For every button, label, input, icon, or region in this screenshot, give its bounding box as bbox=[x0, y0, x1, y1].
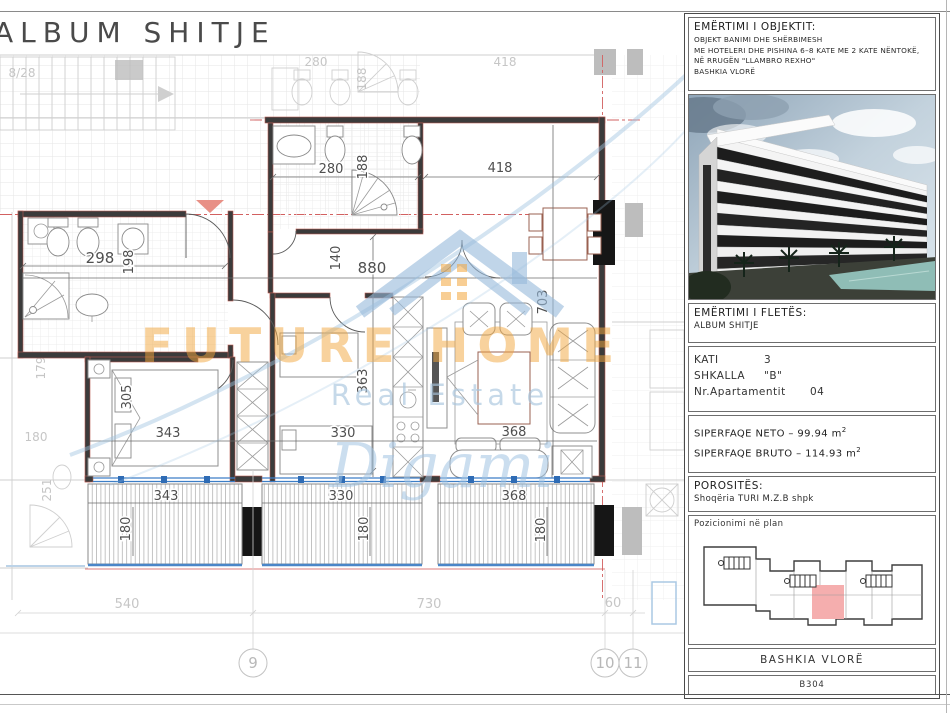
svg-text:280: 280 bbox=[319, 162, 344, 177]
faded-dim: 188 bbox=[355, 68, 369, 91]
faded-dim: 179 bbox=[34, 357, 48, 380]
svg-text:730: 730 bbox=[417, 597, 442, 612]
watermark-signature: Digami bbox=[329, 429, 555, 502]
sheet-bottom-rule bbox=[0, 694, 950, 695]
position-label: Pozicionimi në plan bbox=[694, 519, 930, 529]
svg-text:343: 343 bbox=[156, 426, 181, 441]
plan-title: ALBUM SHITJE bbox=[0, 16, 276, 49]
sheet-right-edge bbox=[946, 0, 947, 713]
sheet-value: ALBUM SHITJE bbox=[694, 321, 930, 331]
staircase-label: SHKALLA bbox=[694, 370, 750, 382]
building-render bbox=[689, 95, 936, 300]
object-label: EMËRTIMI I OBJEKTIT: bbox=[694, 21, 930, 33]
faded-dim: 280 bbox=[305, 55, 328, 69]
sheet-bottom-rule-2 bbox=[0, 704, 950, 705]
svg-text:188: 188 bbox=[356, 155, 371, 180]
bedroom1-furniture bbox=[88, 360, 218, 476]
object-line: ME HOTELERI DHE PISHINA 6–8 KATE ME 2 KA… bbox=[694, 46, 930, 57]
floor-plan-drawing: 8/28 280 188 418 179 180 251 bbox=[0, 0, 686, 713]
gross-area: SIPERFAQE BRUTO – 114.93 m2 bbox=[694, 446, 930, 459]
building-photo bbox=[688, 94, 936, 300]
areas-box: SIPERFAQE NETO – 99.94 m2 SIPERFAQE BRUT… bbox=[688, 415, 936, 473]
sheet-code-box: B304 bbox=[688, 675, 936, 695]
client-box: POROSITËS: Shoqëria TURI M.Z.B shpk bbox=[688, 476, 936, 512]
faded-dim: 418 bbox=[494, 55, 517, 69]
svg-text:180: 180 bbox=[534, 518, 549, 543]
key-plan bbox=[694, 535, 930, 635]
svg-text:305: 305 bbox=[120, 385, 135, 410]
faded-dim: 251 bbox=[40, 479, 54, 502]
faded-dim: 180 bbox=[25, 430, 48, 444]
svg-text:198: 198 bbox=[122, 250, 137, 275]
svg-text:298: 298 bbox=[86, 249, 115, 267]
drawing-sheet: 8/28 280 188 418 179 180 251 bbox=[0, 0, 950, 713]
floor-label: KATI bbox=[694, 354, 750, 366]
svg-text:540: 540 bbox=[115, 597, 140, 612]
grid-bubble-label: 10 bbox=[595, 654, 614, 672]
object-line: BASHKIA VLORË bbox=[694, 67, 930, 78]
unit-info-box: KATI3 SHKALLA"B" Nr.Apartamentit04 bbox=[688, 346, 936, 412]
svg-text:180: 180 bbox=[119, 517, 134, 542]
watermark-tagline: Real Estate bbox=[331, 378, 550, 412]
svg-text:60: 60 bbox=[605, 596, 622, 611]
apartment-label: Nr.Apartamentit bbox=[694, 386, 796, 398]
object-name-box: EMËRTIMI I OBJEKTIT: OBJEKT BANIMI DHE S… bbox=[688, 17, 936, 91]
highlighted-unit bbox=[812, 585, 844, 619]
grid-bubble-label: 9 bbox=[248, 654, 258, 672]
grid-bubble-label: 11 bbox=[623, 654, 642, 672]
object-line: NË RRUGËN "LLAMBRO REXHO" bbox=[694, 56, 930, 67]
sheet-label: EMËRTIMI I FLETËS: bbox=[694, 307, 930, 319]
watermark-brand: FUTURE HOME bbox=[141, 319, 623, 374]
object-line: OBJEKT BANIMI DHE SHËRBIMESH bbox=[694, 35, 930, 46]
svg-text:180: 180 bbox=[357, 517, 372, 542]
svg-text:418: 418 bbox=[488, 161, 513, 176]
svg-text:880: 880 bbox=[358, 259, 387, 277]
client-label: POROSITËS: bbox=[694, 480, 930, 492]
sheet-name-box: EMËRTIMI I FLETËS: ALBUM SHITJE bbox=[688, 303, 936, 343]
apartment-value: 04 bbox=[810, 386, 824, 398]
position-box: Pozicionimi në plan bbox=[688, 515, 936, 645]
svg-text:140: 140 bbox=[329, 246, 344, 271]
municipality-box: BASHKIA VLORË bbox=[688, 648, 936, 672]
net-area: SIPERFAQE NETO – 99.94 m2 bbox=[694, 426, 930, 439]
svg-text:343: 343 bbox=[154, 489, 179, 504]
title-block: EMËRTIMI I OBJEKTIT: OBJEKT BANIMI DHE S… bbox=[684, 13, 940, 699]
floor-value: 3 bbox=[764, 354, 771, 366]
stair-flight-label: 8/28 bbox=[9, 66, 36, 80]
staircase-value: "B" bbox=[764, 370, 782, 382]
client-value: Shoqëria TURI M.Z.B shpk bbox=[694, 494, 930, 504]
